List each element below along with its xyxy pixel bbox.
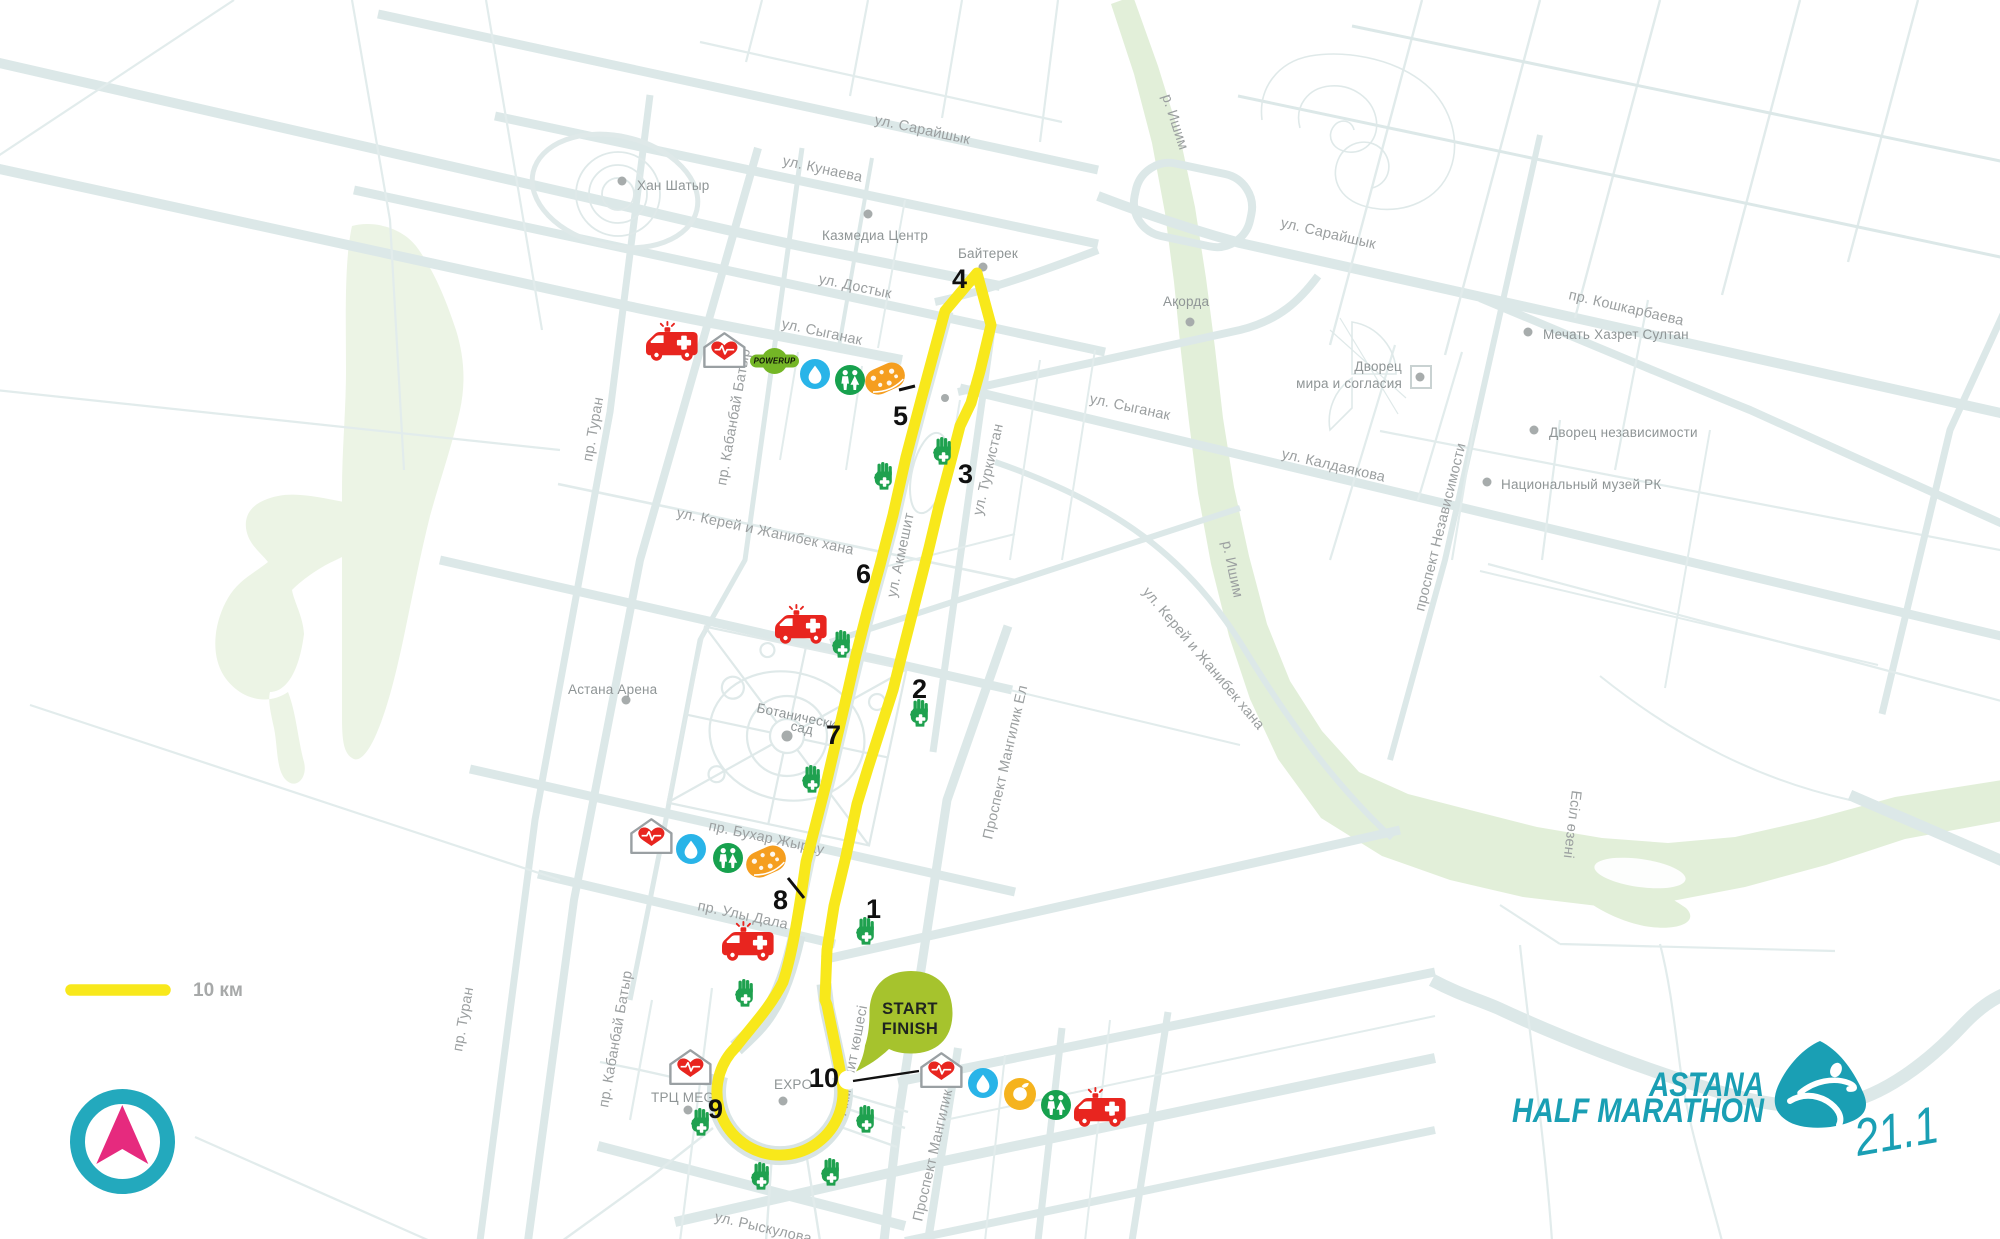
svg-text:9: 9	[708, 1094, 723, 1124]
svg-text:EXPO: EXPO	[774, 1077, 812, 1092]
svg-text:Байтерек: Байтерек	[958, 246, 1018, 261]
svg-text:Астана Арена: Астана Арена	[568, 682, 658, 697]
svg-text:Национальный музей РК: Национальный музей РК	[1501, 477, 1661, 492]
svg-text:8: 8	[773, 885, 788, 915]
svg-text:1: 1	[866, 894, 881, 924]
svg-text:START: START	[882, 1000, 938, 1018]
svg-text:Мечать Хазрет Султан: Мечать Хазрет Султан	[1543, 327, 1689, 342]
svg-text:7: 7	[826, 720, 841, 750]
svg-text:FINISH: FINISH	[882, 1020, 938, 1038]
svg-text:Ақорда: Ақорда	[1163, 294, 1209, 309]
svg-text:мира и согласия: мира и согласия	[1296, 376, 1402, 391]
svg-text:Дворец: Дворец	[1354, 359, 1402, 374]
svg-text:6: 6	[856, 559, 871, 589]
svg-text:5: 5	[893, 401, 908, 431]
svg-text:10: 10	[809, 1063, 839, 1093]
svg-text:3: 3	[958, 459, 973, 489]
svg-text:Казмедиа Центр: Казмедиа Центр	[822, 228, 928, 243]
svg-text:Хан Шатыр: Хан Шатыр	[637, 178, 710, 193]
svg-text:2: 2	[912, 674, 927, 704]
svg-text:10 км: 10 км	[193, 980, 243, 1001]
svg-text:4: 4	[952, 264, 967, 294]
svg-text:Дворец независимости: Дворец независимости	[1549, 425, 1698, 440]
svg-text:HALF MARATHON: HALF MARATHON	[1512, 1092, 1765, 1130]
